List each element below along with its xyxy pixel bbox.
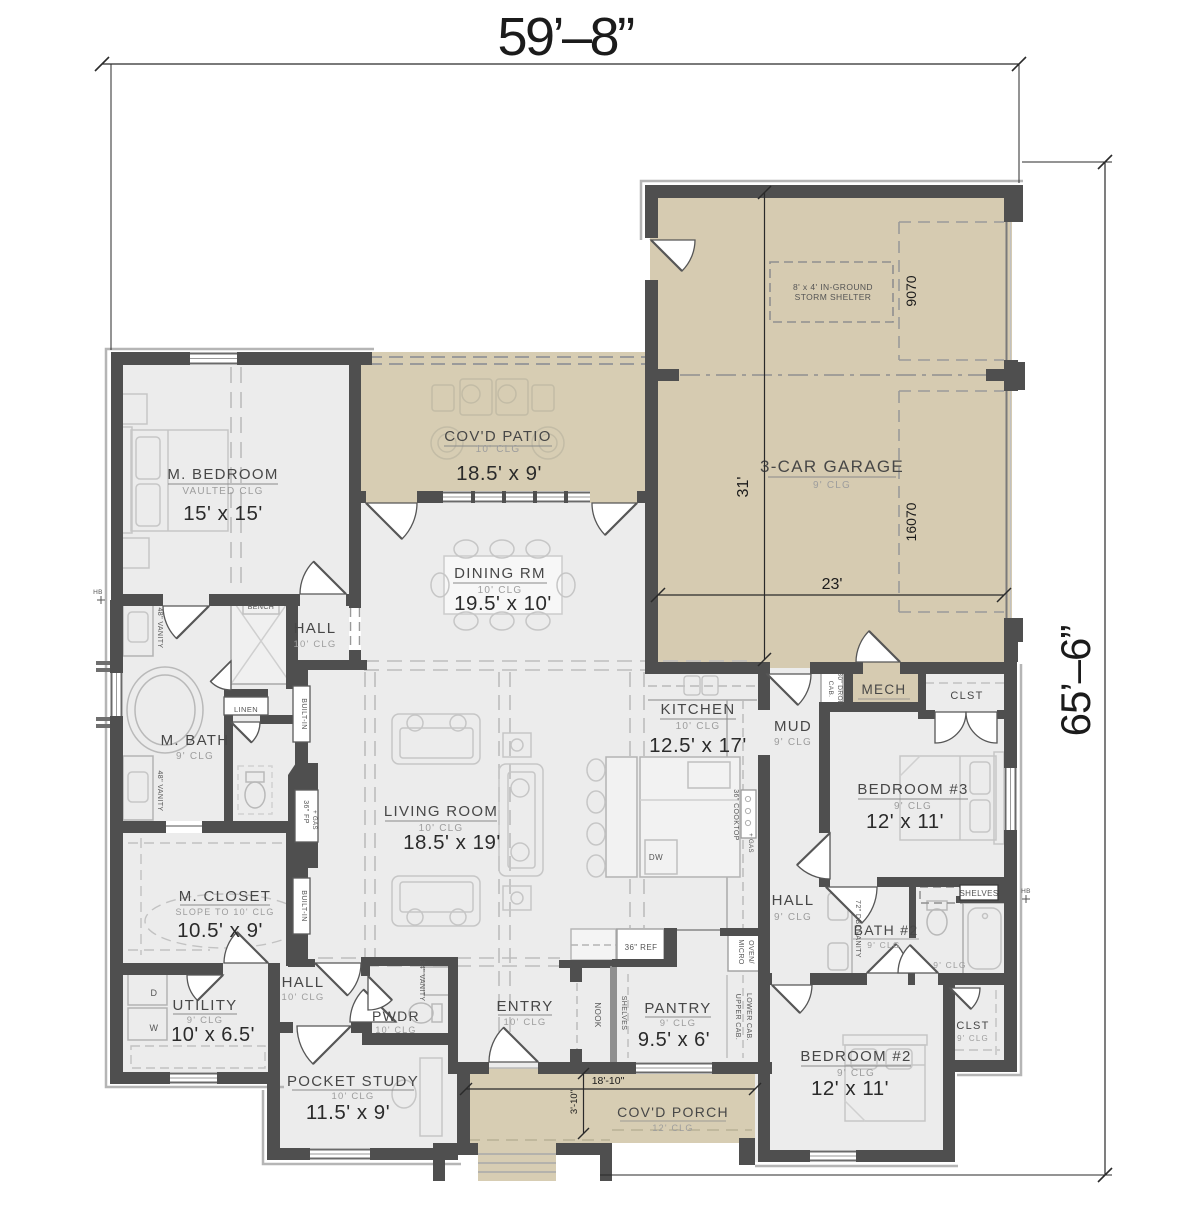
svg-text:8' x 4' IN-GROUND: 8' x 4' IN-GROUND — [793, 282, 873, 292]
svg-text:36" COOKTOP: 36" COOKTOP — [732, 789, 739, 841]
svg-text:BATH #2: BATH #2 — [854, 922, 919, 938]
svg-text:+ GAS: + GAS — [311, 810, 317, 830]
svg-text:BEDROOM #3: BEDROOM #3 — [857, 781, 968, 798]
svg-text:65’–6”: 65’–6” — [1052, 626, 1099, 737]
svg-text:SLOPE TO 10' CLG: SLOPE TO 10' CLG — [175, 907, 274, 917]
svg-text:DW: DW — [649, 853, 663, 862]
svg-text:11.5' x 9': 11.5' x 9' — [306, 1101, 390, 1124]
svg-text:10' CLG: 10' CLG — [294, 639, 337, 650]
svg-text:10.5' x 9': 10.5' x 9' — [177, 919, 263, 942]
svg-text:OVEN/: OVEN/ — [747, 940, 754, 964]
svg-text:HALL: HALL — [772, 892, 815, 909]
svg-text:10' CLG: 10' CLG — [476, 444, 521, 455]
svg-text:12' CLG: 12' CLG — [652, 1123, 693, 1133]
svg-text:9' CLG: 9' CLG — [867, 940, 900, 950]
svg-text:3-CAR GARAGE: 3-CAR GARAGE — [760, 457, 904, 476]
svg-text:M. BEDROOM: M. BEDROOM — [167, 466, 278, 483]
svg-text:CLST: CLST — [956, 1020, 989, 1032]
svg-text:HB: HB — [93, 589, 103, 596]
svg-text:KITCHEN: KITCHEN — [661, 701, 736, 718]
svg-text:D: D — [151, 988, 158, 998]
svg-text:10' CLG: 10' CLG — [504, 1017, 547, 1028]
svg-text:MECH: MECH — [862, 682, 907, 697]
svg-text:9' CLG: 9' CLG — [176, 751, 214, 762]
svg-text:18'-10": 18'-10" — [592, 1075, 625, 1087]
svg-text:BUILT-IN: BUILT-IN — [300, 890, 307, 921]
svg-text:STORM SHELTER: STORM SHELTER — [795, 292, 872, 302]
svg-text:POCKET STUDY: POCKET STUDY — [287, 1073, 419, 1090]
svg-text:15' x 15': 15' x 15' — [183, 502, 263, 525]
svg-text:9' CLG: 9' CLG — [957, 1034, 989, 1043]
svg-text:UPPER CAB.: UPPER CAB. — [734, 994, 741, 1040]
svg-text:3'-10": 3'-10" — [569, 1090, 580, 1114]
svg-text:59’–8”: 59’–8” — [497, 7, 633, 67]
svg-text:DINING RM: DINING RM — [454, 565, 546, 582]
svg-text:CLST: CLST — [950, 690, 983, 702]
svg-text:ENTRY: ENTRY — [496, 998, 553, 1015]
svg-text:PANTRY: PANTRY — [644, 1000, 711, 1017]
svg-text:30" DROP: 30" DROP — [836, 672, 843, 705]
svg-text:9' CLG: 9' CLG — [660, 1018, 696, 1029]
svg-text:COV'D PATIO: COV'D PATIO — [444, 428, 551, 445]
svg-text:SHELVES: SHELVES — [959, 889, 998, 898]
svg-text:10' x 6.5': 10' x 6.5' — [171, 1024, 255, 1046]
svg-text:12' x 11': 12' x 11' — [811, 1077, 889, 1100]
svg-text:48" VANITY: 48" VANITY — [156, 608, 163, 649]
svg-text:NOOK: NOOK — [593, 1002, 602, 1027]
svg-text:9' CLG: 9' CLG — [813, 480, 851, 491]
svg-text:MUD: MUD — [774, 718, 812, 735]
svg-text:BENCH: BENCH — [248, 604, 275, 611]
svg-text:HALL: HALL — [282, 974, 325, 991]
svg-text:MICRO: MICRO — [737, 939, 744, 964]
svg-text:9' CLG: 9' CLG — [774, 737, 812, 748]
svg-text:CAB.: CAB. — [827, 681, 834, 698]
svg-text:9070: 9070 — [903, 275, 919, 306]
svg-text:72" DBL VANITY: 72" DBL VANITY — [854, 900, 861, 958]
svg-text:16070: 16070 — [903, 502, 919, 541]
svg-text:LINEN: LINEN — [234, 705, 258, 714]
svg-text:BEDROOM #2: BEDROOM #2 — [800, 1048, 911, 1065]
svg-text:18.5' x 9': 18.5' x 9' — [456, 462, 542, 485]
svg-text:10' CLG: 10' CLG — [676, 721, 721, 732]
svg-text:LIVING ROOM: LIVING ROOM — [384, 803, 498, 820]
svg-text:19.5' x 10': 19.5' x 10' — [454, 592, 552, 615]
svg-text:36" FP: 36" FP — [302, 800, 309, 824]
svg-text:10' CLG: 10' CLG — [282, 992, 325, 1003]
svg-text:BUILT-IN: BUILT-IN — [300, 698, 307, 729]
svg-text:HB: HB — [1021, 888, 1031, 895]
svg-text:48" VANITY: 48" VANITY — [156, 771, 163, 812]
svg-text:W: W — [150, 1023, 159, 1033]
svg-text:VAULTED CLG: VAULTED CLG — [182, 486, 263, 497]
svg-text:M. BATH: M. BATH — [161, 732, 230, 749]
svg-text:M. CLOSET: M. CLOSET — [179, 888, 272, 905]
svg-text:PWDR: PWDR — [372, 1008, 420, 1024]
svg-text:COV'D PORCH: COV'D PORCH — [617, 1104, 729, 1120]
svg-text:18.5' x 19': 18.5' x 19' — [403, 831, 501, 854]
svg-text:+ GAS: + GAS — [747, 833, 753, 853]
svg-text:12' x 11': 12' x 11' — [866, 810, 944, 833]
svg-text:9' CLG: 9' CLG — [774, 912, 812, 923]
svg-text:9.5' x 6': 9.5' x 6' — [638, 1029, 710, 1051]
svg-text:UTILITY: UTILITY — [173, 997, 238, 1014]
svg-text:10' CLG: 10' CLG — [375, 1025, 416, 1035]
svg-text:31': 31' — [735, 477, 752, 498]
svg-text:SHELVES: SHELVES — [620, 996, 627, 1031]
svg-text:9' CLG: 9' CLG — [933, 960, 966, 970]
svg-text:HALL: HALL — [294, 620, 337, 637]
svg-text:24" VANITY: 24" VANITY — [418, 961, 425, 1002]
svg-text:LOWER CAB.: LOWER CAB. — [745, 993, 752, 1041]
svg-text:36" REF: 36" REF — [625, 943, 658, 952]
svg-text:12.5' x 17': 12.5' x 17' — [649, 734, 747, 757]
svg-text:23': 23' — [822, 576, 843, 593]
